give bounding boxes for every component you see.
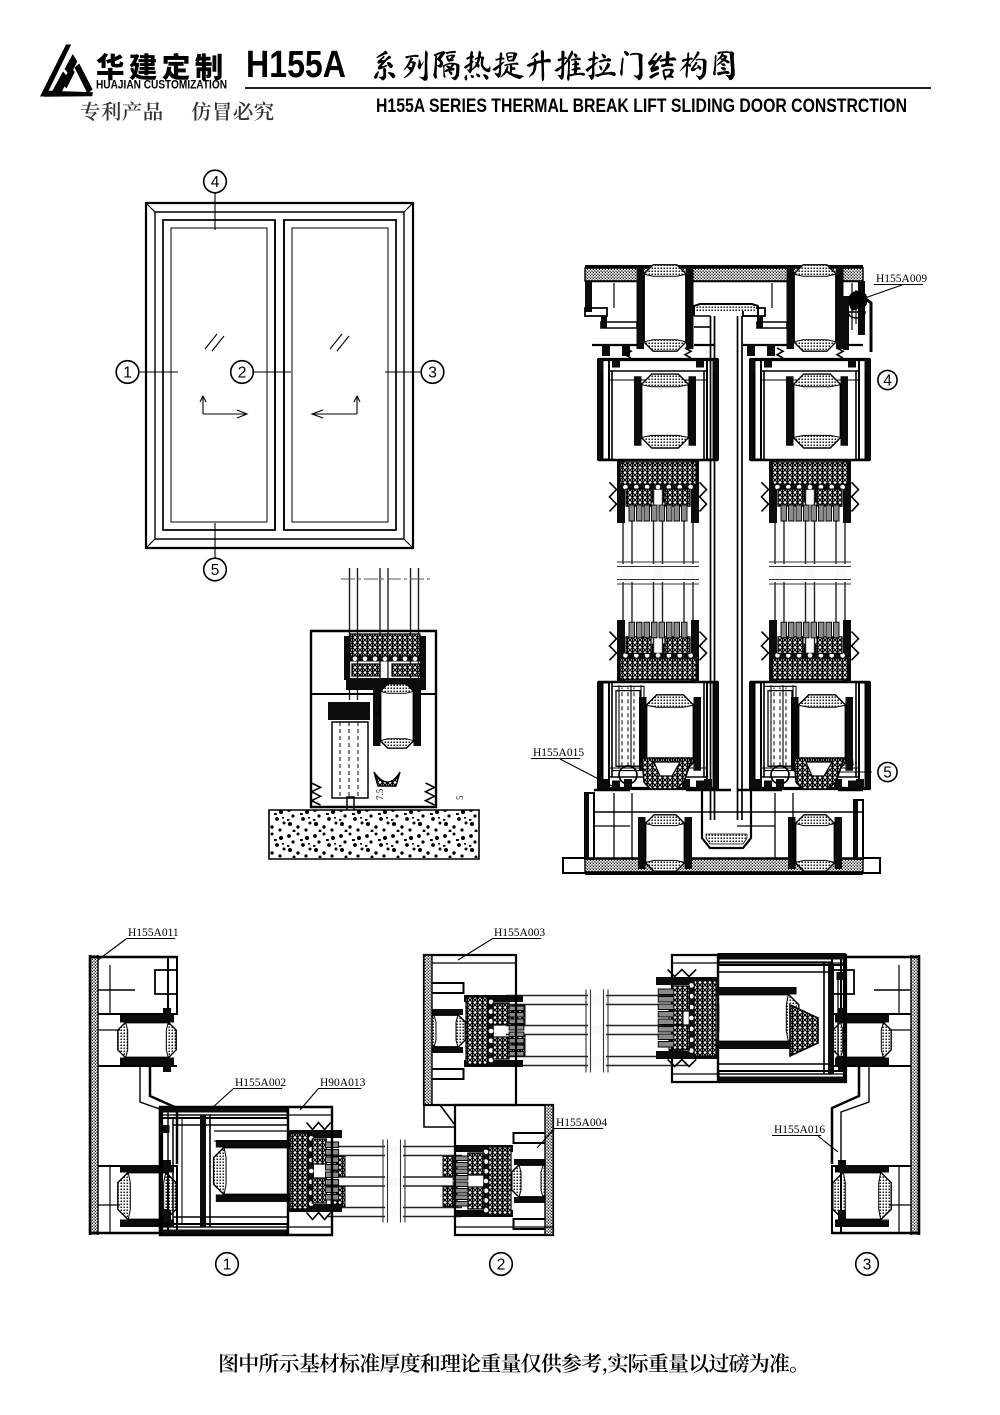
svg-text:3: 3 — [428, 365, 437, 382]
svg-text:2: 2 — [497, 1257, 506, 1274]
svg-text:5: 5 — [211, 562, 220, 579]
svg-text:H155A015: H155A015 — [533, 747, 584, 759]
svg-text:2: 2 — [238, 365, 247, 382]
svg-text:H155A004: H155A004 — [556, 1117, 607, 1129]
svg-text:4: 4 — [883, 373, 892, 390]
svg-text:9.5: 9.5 — [373, 704, 383, 716]
svg-text:5: 5 — [883, 765, 892, 782]
svg-text:H155A011: H155A011 — [128, 927, 179, 939]
svg-text:3: 3 — [863, 1257, 872, 1274]
svg-text:H155A009: H155A009 — [876, 273, 927, 285]
svg-text:1: 1 — [123, 365, 132, 382]
svg-text:H155A SERIES THERMAL BREAK LIF: H155A SERIES THERMAL BREAK LIFT SLIDING … — [376, 96, 907, 117]
svg-text:H155A: H155A — [246, 44, 346, 86]
svg-text:HUAJIAN CUSTOMIZATION: HUAJIAN CUSTOMIZATION — [96, 78, 227, 92]
svg-text:H155A003: H155A003 — [494, 927, 545, 939]
svg-text:H155A002: H155A002 — [235, 1077, 286, 1089]
svg-text:4: 4 — [211, 174, 220, 191]
svg-text:1: 1 — [223, 1257, 232, 1274]
svg-text:H90A013: H90A013 — [320, 1077, 366, 1089]
svg-text:3.4: 3.4 — [843, 758, 855, 768]
svg-text:7.5: 7.5 — [375, 788, 385, 800]
svg-text:H155A016: H155A016 — [774, 1124, 825, 1136]
svg-text:5: 5 — [455, 795, 465, 800]
